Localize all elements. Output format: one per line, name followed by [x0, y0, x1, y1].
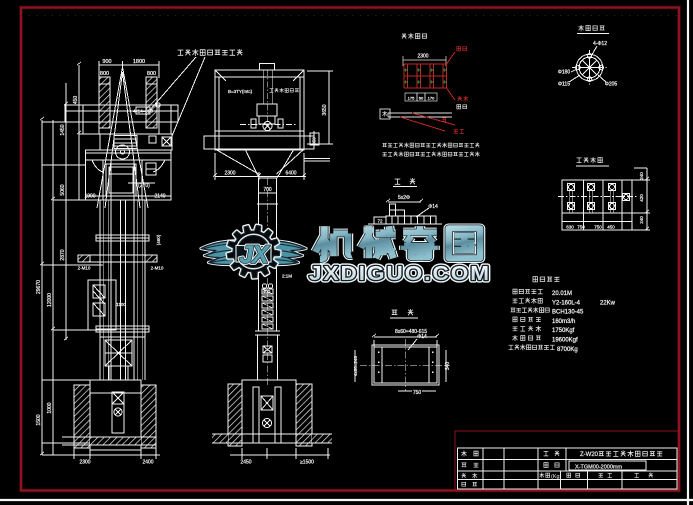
svg-text:Z-W20: Z-W20 — [580, 452, 599, 458]
svg-text:X-TGM00-2000mm: X-TGM00-2000mm — [575, 465, 622, 471]
svg-text:750: 750 — [594, 225, 602, 230]
svg-text:≥1500: ≥1500 — [300, 460, 314, 466]
svg-text:4x14=600: 4x14=600 — [133, 109, 153, 114]
svg-text:60: 60 — [419, 96, 424, 101]
svg-text:(Kg: (Kg — [551, 474, 560, 480]
svg-text:Φ180: Φ180 — [558, 70, 571, 76]
svg-text:2300: 2300 — [224, 171, 235, 177]
svg-text:Φ205: Φ205 — [605, 82, 618, 88]
svg-text:JXDIGUO.COM: JXDIGUO.COM — [309, 262, 491, 285]
svg-text:2-M10: 2-M10 — [151, 266, 164, 271]
svg-text:1800: 1800 — [133, 59, 145, 65]
svg-text:700: 700 — [263, 187, 272, 193]
svg-text:72: 72 — [377, 219, 383, 224]
svg-text:2300: 2300 — [417, 54, 428, 60]
svg-text:2300: 2300 — [79, 460, 90, 466]
svg-text:750: 750 — [577, 225, 585, 230]
svg-text:750: 750 — [413, 390, 422, 396]
svg-text:Y2-160L-4: Y2-160L-4 — [552, 300, 581, 306]
svg-text:Φ115: Φ115 — [558, 82, 570, 88]
svg-text:240: 240 — [639, 216, 644, 224]
svg-text:2-M10: 2-M10 — [78, 266, 91, 271]
svg-text:1500: 1500 — [36, 414, 42, 425]
svg-text:800: 800 — [147, 71, 156, 77]
svg-text:400: 400 — [263, 289, 271, 294]
svg-text:2400: 2400 — [142, 460, 153, 466]
svg-text:20.01M: 20.01M — [552, 291, 572, 297]
svg-text:B=3TY(mtc): B=3TY(mtc) — [228, 89, 253, 94]
svg-text:450: 450 — [73, 96, 79, 105]
svg-text:2:1M: 2:1M — [282, 274, 292, 279]
svg-text:170: 170 — [428, 96, 435, 101]
svg-text:340: 340 — [445, 362, 451, 371]
svg-text:Φ14: Φ14 — [428, 204, 438, 210]
svg-text:1100: 1100 — [116, 302, 126, 307]
svg-text:4-Φ12: 4-Φ12 — [593, 41, 607, 47]
svg-text:450: 450 — [607, 225, 615, 230]
svg-text:4x60=240: 4x60=240 — [353, 356, 358, 376]
svg-text:630: 630 — [566, 225, 574, 230]
svg-text:Φ14: Φ14 — [417, 334, 427, 340]
svg-text:900: 900 — [102, 59, 111, 65]
svg-text:JX: JX — [239, 241, 270, 269]
svg-text:BCH130-45: BCH130-45 — [552, 310, 584, 316]
svg-text:850: 850 — [312, 137, 317, 145]
svg-text:1450: 1450 — [60, 124, 66, 135]
svg-text:5x2Φ: 5x2Φ — [398, 195, 410, 201]
svg-text:160m3/h: 160m3/h — [552, 319, 575, 325]
svg-text:420: 420 — [639, 194, 644, 202]
svg-text:5060: 5060 — [60, 184, 66, 195]
svg-text:19600Kgf: 19600Kgf — [552, 338, 578, 344]
svg-text:(460): (460) — [156, 234, 161, 245]
svg-text:1750Kgf: 1750Kgf — [552, 328, 575, 334]
svg-text:1900: 1900 — [84, 194, 95, 200]
svg-text:175: 175 — [408, 96, 415, 101]
svg-text:(270): (270) — [138, 183, 150, 189]
svg-text:22Kw: 22Kw — [600, 300, 616, 306]
svg-text:8700Kg: 8700Kg — [557, 347, 578, 353]
svg-text:3650: 3650 — [322, 104, 328, 115]
svg-text:6400: 6400 — [285, 171, 296, 177]
svg-text:1000: 1000 — [47, 402, 53, 413]
svg-text:2870: 2870 — [60, 249, 66, 260]
svg-text:2450: 2450 — [240, 460, 251, 466]
svg-text:2140: 2140 — [154, 194, 165, 200]
svg-text:29670: 29670 — [36, 280, 42, 294]
svg-text:240: 240 — [639, 172, 644, 180]
svg-text:800: 800 — [100, 71, 109, 77]
svg-text:12000: 12000 — [47, 293, 53, 307]
